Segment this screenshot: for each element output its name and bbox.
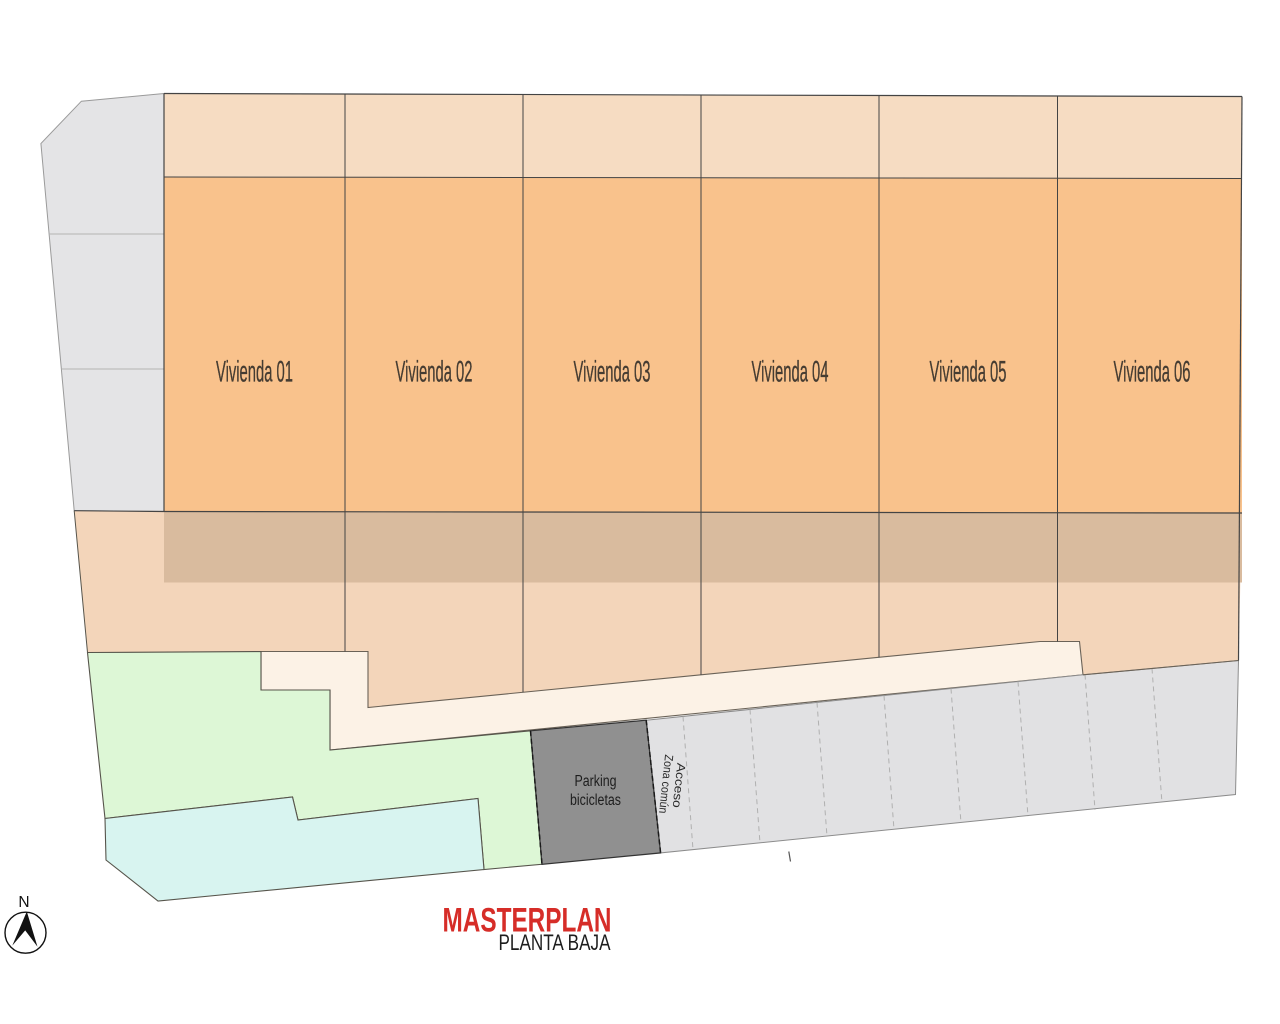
svg-text:Parking: Parking xyxy=(575,773,617,790)
svg-text:bicicletas: bicicletas xyxy=(570,792,621,809)
svg-text:Vivienda 05: Vivienda 05 xyxy=(930,356,1007,389)
svg-text:Vivienda 06: Vivienda 06 xyxy=(1114,356,1191,389)
svg-text:PLANTA BAJA: PLANTA BAJA xyxy=(499,930,611,955)
svg-text:Vivienda 02: Vivienda 02 xyxy=(396,356,473,389)
svg-text:Vivienda 04: Vivienda 04 xyxy=(752,356,829,389)
svg-text:N: N xyxy=(18,894,29,911)
svg-text:Vivienda 03: Vivienda 03 xyxy=(574,356,651,389)
svg-text:Vivienda 01: Vivienda 01 xyxy=(216,356,293,389)
